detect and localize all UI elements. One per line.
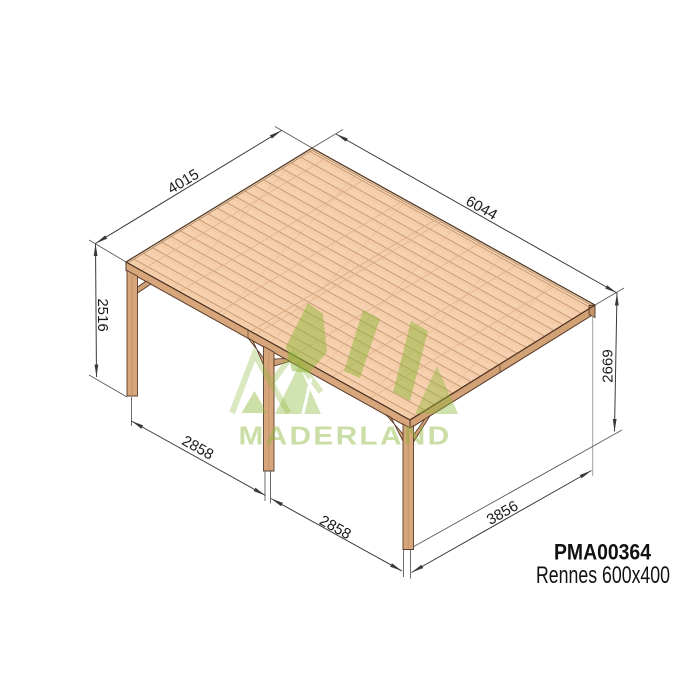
svg-text:Rennes 600x400: Rennes 600x400 xyxy=(536,562,670,589)
svg-text:MADERLAND: MADERLAND xyxy=(239,421,452,451)
svg-text:PMA00364: PMA00364 xyxy=(554,540,652,565)
svg-text:2669: 2669 xyxy=(600,349,617,382)
svg-text:2516: 2516 xyxy=(94,298,111,331)
